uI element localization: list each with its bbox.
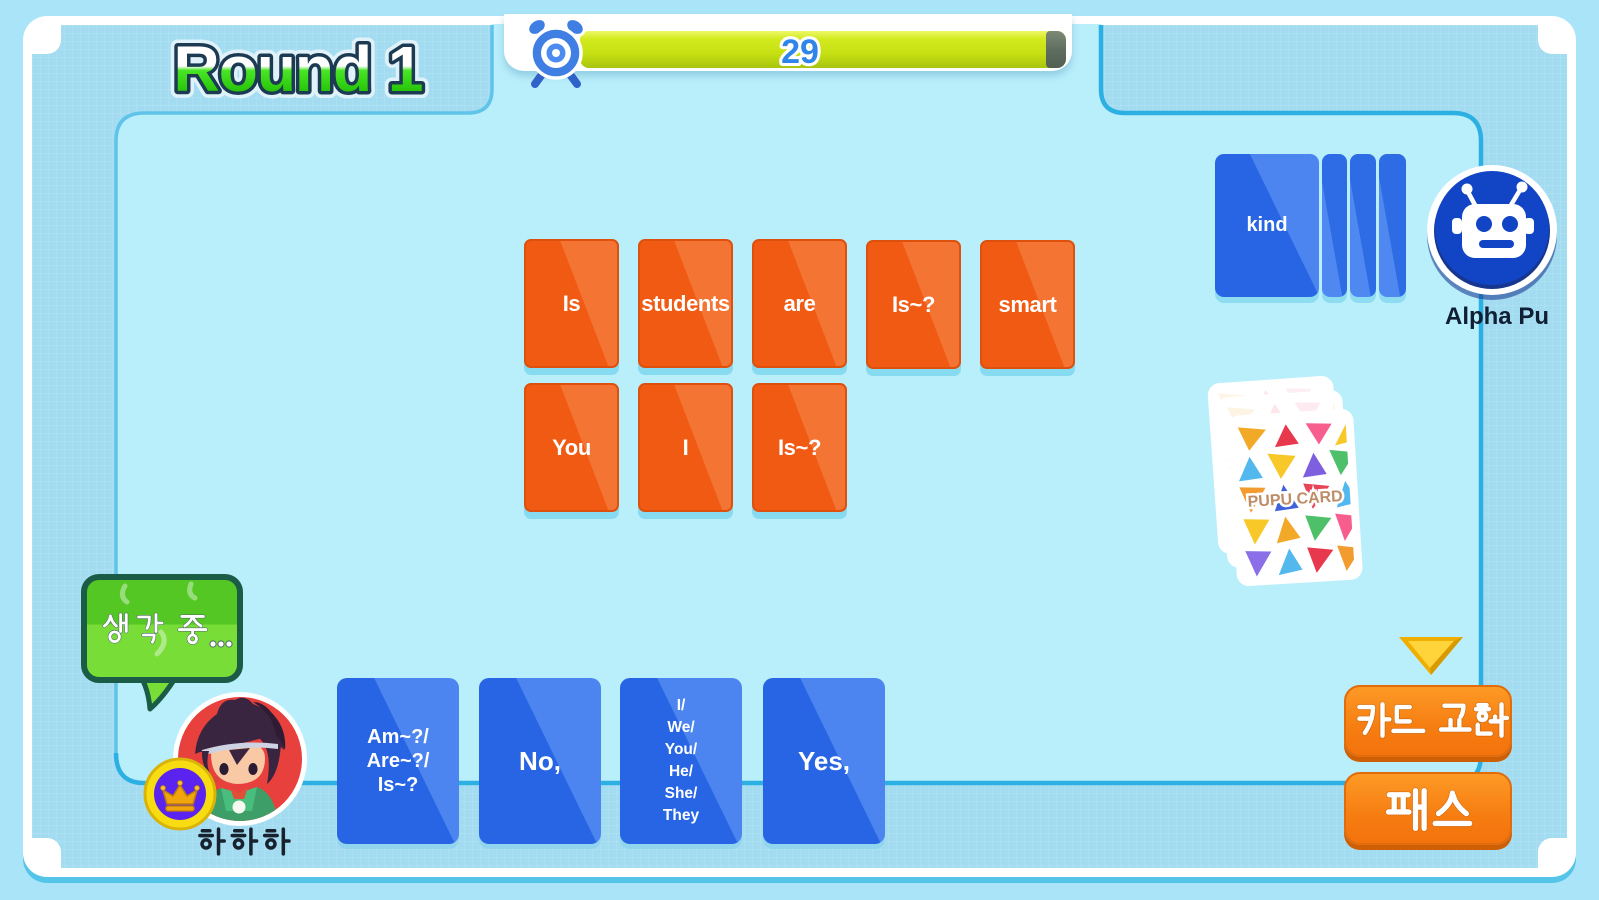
svg-text:29: 29 [781, 33, 819, 71]
svg-text:Round 1: Round 1 [174, 33, 423, 105]
